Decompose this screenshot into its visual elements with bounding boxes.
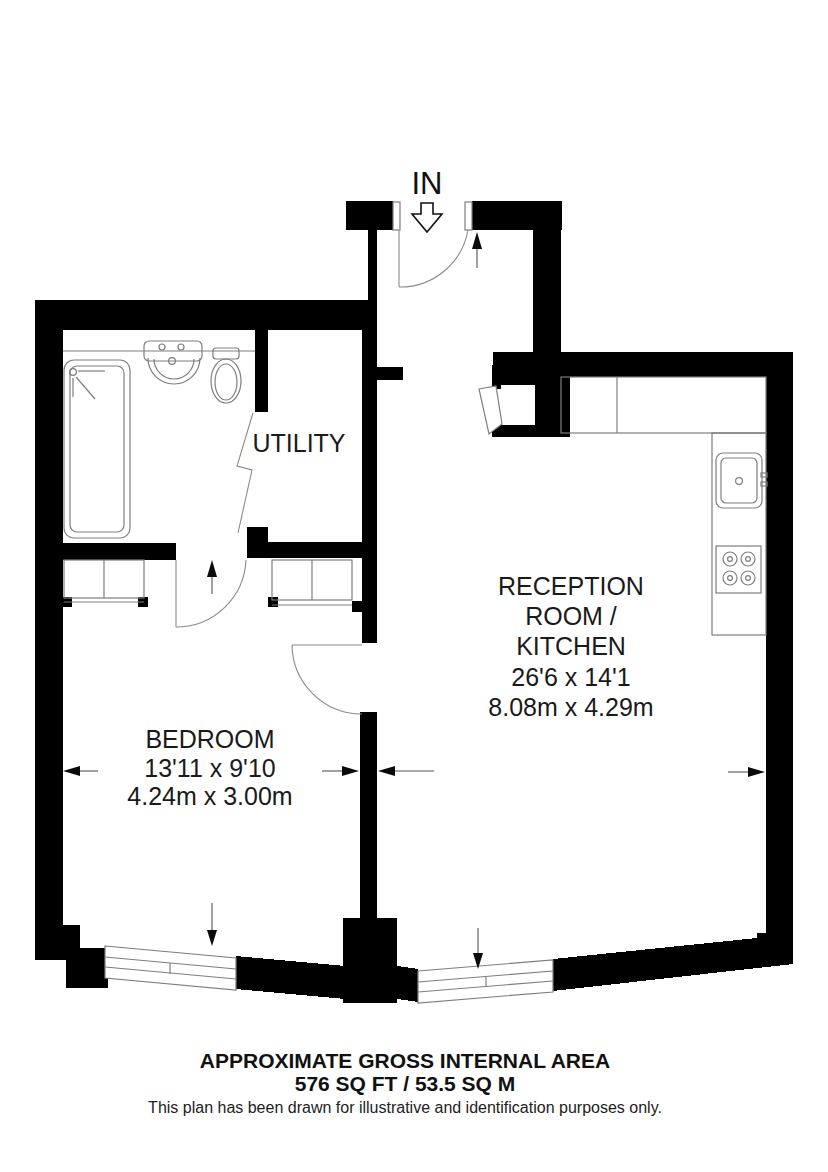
footer-area-title: APPROXIMATE GROSS INTERNAL AREA [200,1049,610,1072]
bedroom-window-arrow-down [207,903,217,946]
labels: IN UTILITY BEDROOM 13'11 x 9'10 4.24m x … [127,166,653,810]
doors [176,202,502,714]
wall-utility-right [362,310,377,643]
wall-cupboard-bottom [492,425,570,437]
kitchen-sink-icon [716,453,767,508]
wall-reception-bottom-left [397,966,418,1002]
wardrobe-left [64,560,144,602]
bedroom-window [105,946,236,990]
wall-bottom-left-step2 [66,948,108,988]
utility-bifold-door [237,413,253,533]
wall-bedroom-bottom [236,956,345,999]
entry-dim-arrow-up [472,232,482,268]
cupboard-door [479,386,502,434]
wall-bathroom-right-stub [255,330,268,412]
bathroom-fixtures [63,341,255,538]
reception-window [418,960,553,1003]
divider-dim-arrow-left [378,766,434,776]
bedroom-dims-imperial: 13'11 x 9'10 [144,754,275,782]
reception-dims-imperial: 26'6 x 14'1 [511,663,630,691]
footer-disclaimer: This plan has been drawn for illustrativ… [148,1099,662,1116]
wall-cupboard-top [492,365,570,385]
wall-outer-left [35,300,63,955]
toilet-icon [211,348,241,403]
kitchen-counter-right [712,433,766,635]
wall-entry-top-right [472,201,562,230]
wall-outer-right [766,352,793,942]
wall-bathroom-bottom [58,543,176,560]
reception-label-line3: KITCHEN [516,632,626,660]
kitchen-counter-top [561,377,766,433]
utility-label: UTILITY [252,429,345,457]
bedroom-dims-metric: 4.24m x 3.00m [127,782,292,810]
footer: APPROXIMATE GROSS INTERNAL AREA 576 SQ F… [148,1049,662,1116]
basin-icon [144,341,202,384]
reception-label-line2: ROOM / [525,602,617,630]
hob-icon [716,546,761,593]
bedroom-door [292,645,362,714]
reception-dims-metric: 8.08m x 4.29m [488,693,653,721]
footer-area-value: 576 SQ FT / 53.5 SQ M [295,1072,516,1095]
bedroom-wardrobes [64,560,352,605]
floorplan-svg: IN UTILITY BEDROOM 13'11 x 9'10 4.24m x … [0,0,828,1172]
reception-dim-arrow-right [728,767,765,777]
wall-hall-stub [377,367,403,380]
bedroom-dim-arrow-up [207,560,217,594]
bath-icon [64,360,130,538]
wall-cupboard-side [535,385,570,426]
wall-reception-bottom [553,933,793,991]
bedroom-label: BEDROOM [145,725,274,753]
wall-wardrobe-nib-4 [352,601,362,612]
wall-bathroom-top [35,300,377,330]
floorplan-page: IN UTILITY BEDROOM 13'11 x 9'10 4.24m x … [0,0,828,1172]
wall-divider-bedroom-reception [360,712,377,942]
divider-dim-arrow-right [322,766,359,776]
walls [35,201,793,1003]
entrance-in-arrow-icon [412,203,442,232]
entrance-label: IN [412,166,443,201]
wardrobe-right [272,560,352,605]
reception-label-line1: RECEPTION [498,572,644,600]
reception-window-arrow-down [473,928,483,969]
wall-entry-top-left [346,201,393,230]
wall-divider-junction-block [343,918,397,1003]
wall-utility-bottom [247,542,363,558]
bedroom-dim-arrow-left [63,766,98,776]
